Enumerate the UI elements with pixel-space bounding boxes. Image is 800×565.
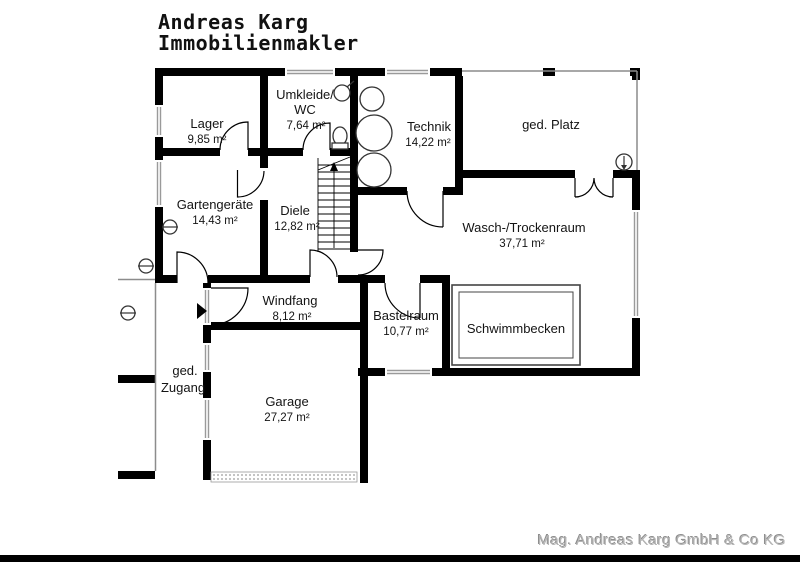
room-area-bastelraum: 10,77 m² — [383, 326, 429, 338]
door-entry-windfang — [211, 288, 248, 325]
room-label-schwimmbecken: Schwimmbecken — [467, 321, 565, 336]
stairs-up-arrow — [330, 162, 338, 171]
room-area-gartengeraete: 14,43 m² — [192, 215, 238, 227]
window — [155, 105, 163, 137]
window — [203, 343, 211, 372]
bottom-bar — [0, 555, 800, 562]
window — [385, 68, 430, 76]
room-label-bastelraum: Bastelraum — [373, 308, 439, 323]
window — [155, 160, 163, 207]
staircase — [318, 157, 350, 252]
window — [203, 288, 211, 325]
door-entry-gartengeraete — [177, 252, 208, 283]
garage-door — [211, 472, 357, 482]
double-door-ged-platz — [575, 178, 613, 197]
washbasin-icon — [334, 85, 350, 101]
room-label-umkleide-1: Umkleide/ — [276, 87, 334, 102]
lamp-icon — [120, 306, 136, 320]
room-area-garage: 27,27 m² — [264, 412, 310, 424]
room-label-umkleide-2: WC — [294, 102, 316, 117]
window — [632, 210, 640, 318]
room-area-lager: 9,85 m² — [188, 134, 227, 146]
room-label-diele: Diele — [280, 203, 310, 218]
door-technik — [407, 191, 443, 227]
floor-plan: Lager 9,85 m² Umkleide/ WC 7,64 m² Techn… — [0, 0, 800, 565]
drain-icon — [616, 154, 632, 170]
window — [385, 368, 432, 376]
room-area-windfang: 8,12 m² — [273, 311, 312, 323]
room-label-lager: Lager — [190, 116, 224, 131]
toilet-icon — [333, 127, 347, 145]
window — [285, 68, 335, 76]
room-area-wasch: 37,71 m² — [499, 238, 545, 250]
door-diele-wasch — [358, 250, 383, 275]
room-label-wasch: Wasch-/Trockenraum — [462, 220, 585, 235]
room-label-ged-zugang-1: ged. — [172, 363, 197, 378]
window — [203, 398, 211, 440]
room-area-umkleide: 7,64 m² — [287, 120, 326, 132]
room-label-ged-platz: ged. Platz — [522, 117, 580, 132]
room-label-garage: Garage — [265, 394, 308, 409]
room-area-diele: 12,82 m² — [274, 221, 320, 233]
room-label-gartengeraete: Gartengeräte — [177, 197, 254, 212]
room-label-ged-zugang-2: Zugang — [161, 380, 205, 395]
room-area-technik: 14,22 m² — [405, 137, 451, 149]
lamp-icon — [138, 259, 154, 273]
door-gartengeraete — [238, 170, 265, 197]
boiler-tank-icons — [356, 87, 392, 187]
lamp-icon — [162, 220, 178, 234]
company-footer: Mag. Andreas Karg GmbH & Co KG — [538, 532, 786, 549]
room-label-technik: Technik — [407, 119, 452, 134]
door-diele-windfang — [310, 250, 337, 277]
room-label-windfang: Windfang — [263, 293, 318, 308]
